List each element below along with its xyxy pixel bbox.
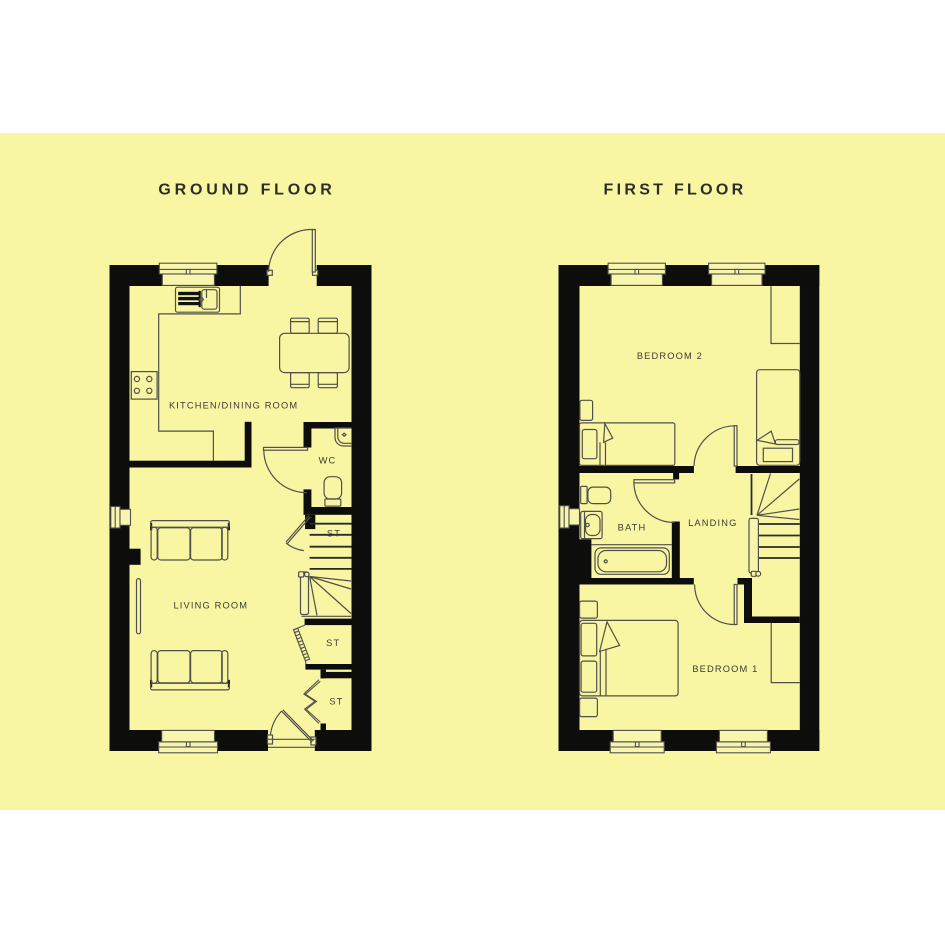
svg-text:ST: ST <box>326 638 340 648</box>
svg-text:BEDROOM 1: BEDROOM 1 <box>692 664 758 674</box>
svg-text:LANDING: LANDING <box>688 518 737 528</box>
svg-text:WC: WC <box>319 455 337 465</box>
svg-text:ST: ST <box>327 528 341 538</box>
svg-text:BATH: BATH <box>618 522 647 532</box>
svg-text:LIVING ROOM: LIVING ROOM <box>173 600 248 610</box>
svg-text:BEDROOM 2: BEDROOM 2 <box>637 351 703 361</box>
svg-text:ST: ST <box>329 697 343 707</box>
svg-text:KITCHEN/DINING ROOM: KITCHEN/DINING ROOM <box>169 401 298 411</box>
svg-text:FIRST FLOOR: FIRST FLOOR <box>604 182 747 199</box>
svg-text:GROUND FLOOR: GROUND FLOOR <box>158 182 335 199</box>
